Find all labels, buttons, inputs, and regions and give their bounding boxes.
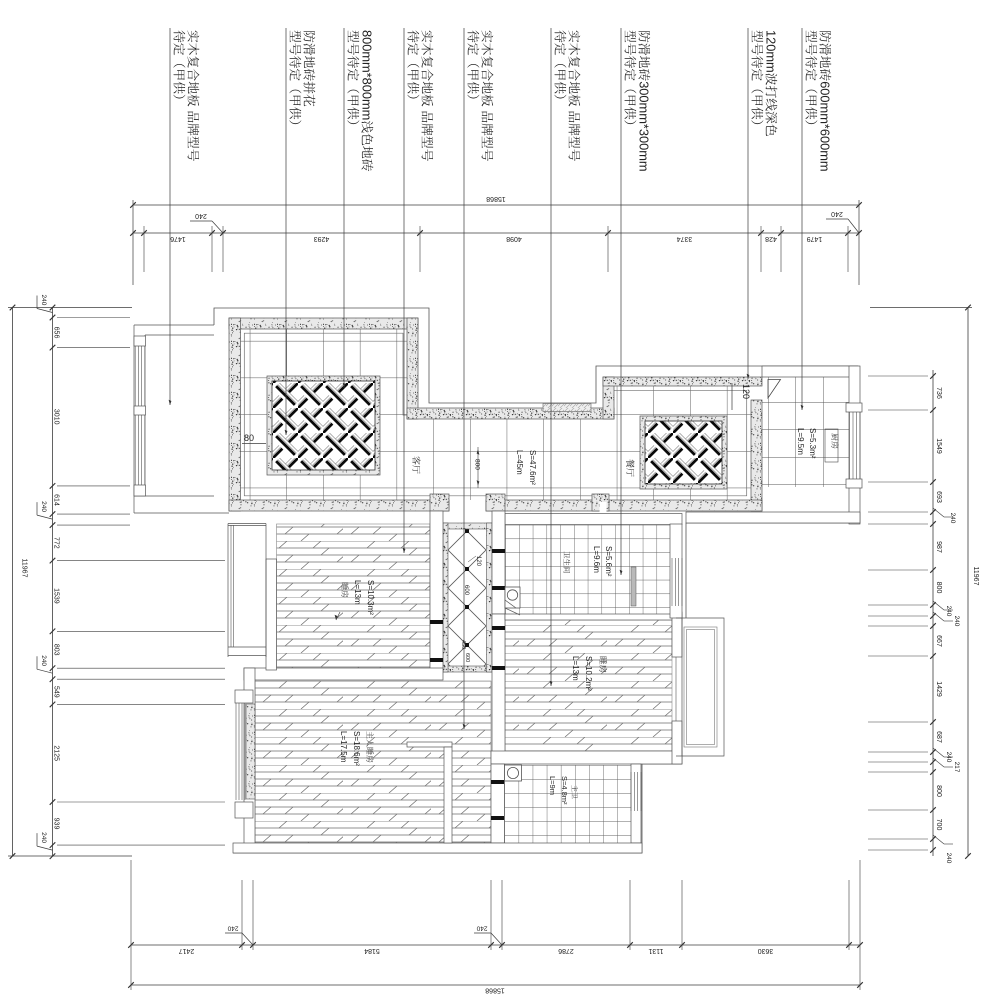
- svg-text:S=47.6m²: S=47.6m²: [528, 450, 537, 485]
- svg-text:防滑地砖600mm*600mm: 防滑地砖600mm*600mm: [818, 30, 833, 172]
- svg-text:217: 217: [953, 762, 960, 773]
- svg-text:1429: 1429: [935, 681, 942, 697]
- svg-text:803: 803: [53, 644, 60, 656]
- svg-text:客厅: 客厅: [411, 456, 421, 474]
- svg-text:型号待定（甲供）: 型号待定（甲供）: [750, 30, 765, 132]
- svg-text:240: 240: [227, 925, 238, 932]
- svg-text:11967: 11967: [972, 567, 979, 586]
- svg-text:1549: 1549: [935, 438, 942, 454]
- svg-text:L=9.5m: L=9.5m: [796, 428, 805, 455]
- svg-text:800mm*800mm浅色地砖: 800mm*800mm浅色地砖: [360, 30, 375, 172]
- svg-text:240: 240: [40, 295, 47, 306]
- svg-text:主卫: 主卫: [570, 785, 578, 799]
- svg-text:S=18.6m²: S=18.6m²: [352, 731, 361, 766]
- svg-text:S=10.3m²: S=10.3m²: [366, 580, 375, 615]
- svg-text:656: 656: [53, 327, 60, 339]
- svg-text:3010: 3010: [53, 409, 60, 425]
- svg-text:120: 120: [741, 384, 751, 399]
- svg-text:15868: 15868: [486, 195, 506, 202]
- svg-text:120mm波打线深色: 120mm波打线深色: [764, 30, 779, 137]
- svg-text:2417: 2417: [179, 947, 195, 954]
- svg-text:3630: 3630: [758, 947, 774, 954]
- svg-text:600: 600: [464, 653, 470, 662]
- svg-text:240: 240: [195, 212, 207, 219]
- svg-text:型号待定（甲供）: 型号待定（甲供）: [288, 30, 303, 132]
- svg-text:餐厅: 餐厅: [625, 459, 635, 477]
- svg-text:600: 600: [463, 585, 469, 596]
- svg-text:实木复合地板 品牌型号: 实木复合地板 品牌型号: [567, 30, 582, 162]
- svg-text:240: 240: [949, 513, 956, 524]
- svg-text:549: 549: [53, 686, 60, 698]
- svg-text:80: 80: [244, 433, 254, 443]
- svg-text:240: 240: [945, 606, 952, 617]
- svg-text:待定（甲供）: 待定（甲供）: [406, 30, 421, 107]
- svg-text:L=9m: L=9m: [548, 776, 557, 795]
- svg-text:实木复合地板 品牌型号: 实木复合地板 品牌型号: [186, 30, 201, 162]
- svg-text:240: 240: [476, 925, 487, 932]
- svg-text:11967: 11967: [21, 559, 28, 578]
- svg-text:240: 240: [945, 853, 952, 864]
- svg-text:240: 240: [945, 752, 952, 763]
- svg-text:4098: 4098: [506, 235, 522, 242]
- svg-text:800: 800: [474, 459, 481, 470]
- svg-text:1479: 1479: [807, 235, 823, 242]
- svg-text:睡房: 睡房: [598, 656, 608, 674]
- svg-text:S=5.6m²: S=5.6m²: [604, 546, 613, 577]
- svg-text:240: 240: [40, 655, 47, 666]
- svg-text:L=17.5m: L=17.5m: [339, 731, 348, 763]
- svg-text:S=4.8m²: S=4.8m²: [560, 776, 569, 805]
- svg-text:800: 800: [935, 785, 942, 797]
- svg-text:120: 120: [475, 556, 481, 567]
- svg-text:693: 693: [935, 491, 942, 503]
- svg-text:428: 428: [765, 235, 777, 242]
- svg-text:卫生间: 卫生间: [562, 551, 571, 574]
- svg-text:1476: 1476: [170, 235, 186, 242]
- svg-text:240: 240: [953, 616, 960, 627]
- svg-text:L=13m: L=13m: [353, 580, 362, 605]
- svg-text:2125: 2125: [53, 745, 60, 761]
- svg-text:772: 772: [53, 537, 60, 549]
- svg-text:667: 667: [935, 635, 942, 647]
- svg-text:主人睡房: 主人睡房: [365, 731, 374, 763]
- svg-text:240: 240: [40, 501, 47, 512]
- svg-text:实木复合地板 品牌型号: 实木复合地板 品牌型号: [480, 30, 495, 162]
- svg-text:4293: 4293: [314, 235, 330, 242]
- svg-text:614: 614: [53, 494, 60, 506]
- svg-text:实木复合地板 品牌型号: 实木复合地板 品牌型号: [420, 30, 435, 162]
- svg-text:450: 450: [460, 640, 466, 649]
- svg-text:L=13m: L=13m: [571, 656, 580, 681]
- svg-text:型号待定（甲供）: 型号待定（甲供）: [804, 30, 819, 132]
- svg-text:687: 687: [935, 731, 942, 743]
- svg-text:240: 240: [831, 210, 843, 217]
- svg-text:待定（甲供）: 待定（甲供）: [466, 30, 481, 107]
- svg-text:1539: 1539: [53, 588, 60, 604]
- svg-text:800: 800: [935, 582, 942, 594]
- svg-text:5184: 5184: [364, 947, 380, 954]
- svg-text:待定（甲供）: 待定（甲供）: [553, 30, 568, 107]
- svg-text:736: 736: [935, 387, 942, 399]
- svg-text:睡房: 睡房: [340, 582, 349, 598]
- svg-text:厨房: 厨房: [830, 433, 839, 449]
- svg-text:1131: 1131: [648, 947, 663, 954]
- svg-text:15868: 15868: [485, 987, 505, 994]
- svg-text:L=45m: L=45m: [515, 450, 524, 475]
- svg-text:L=9.6m: L=9.6m: [592, 546, 601, 573]
- svg-text:型号待定（甲供）: 型号待定（甲供）: [623, 30, 638, 132]
- svg-text:S=10.2m²: S=10.2m²: [584, 656, 593, 691]
- svg-text:待定（甲供）: 待定（甲供）: [172, 30, 187, 107]
- svg-text:型号待定（甲供）: 型号待定（甲供）: [346, 30, 361, 132]
- svg-text:700: 700: [935, 819, 942, 831]
- svg-text:3374: 3374: [677, 235, 693, 242]
- svg-text:防滑地砖拼花: 防滑地砖拼花: [302, 30, 317, 107]
- svg-text:S=5.3m²: S=5.3m²: [808, 428, 817, 459]
- svg-text:防滑地砖300mm*300mm: 防滑地砖300mm*300mm: [637, 30, 652, 172]
- svg-text:939: 939: [53, 818, 60, 830]
- svg-text:2786: 2786: [558, 947, 574, 954]
- svg-text:240: 240: [40, 832, 47, 843]
- svg-text:987: 987: [935, 541, 942, 553]
